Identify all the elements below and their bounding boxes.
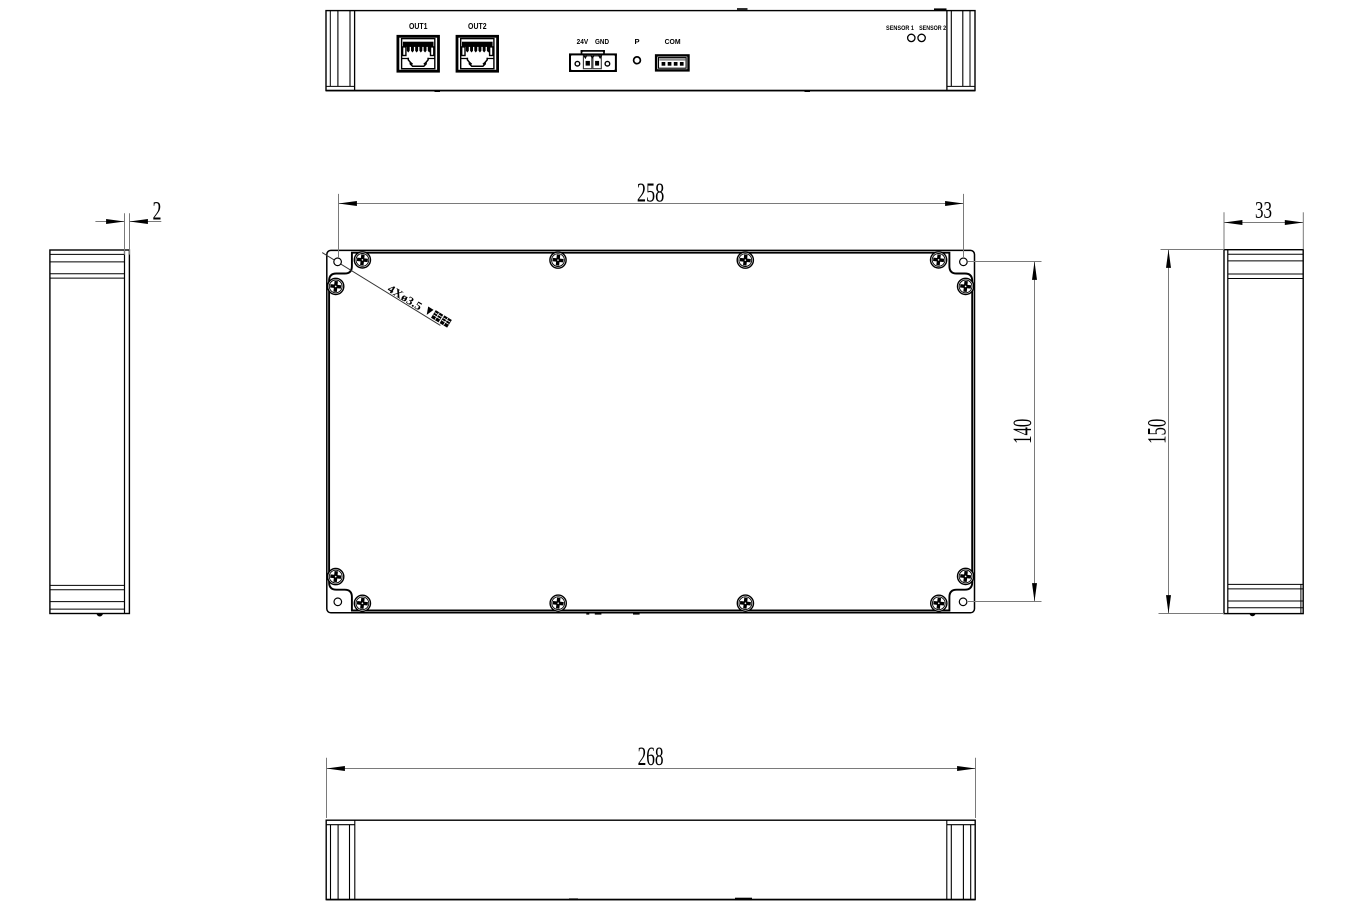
svg-text:GND: GND [595,37,609,46]
svg-text:140: 140 [1008,419,1037,444]
svg-text:24V: 24V [577,37,589,46]
svg-text:150: 150 [1143,419,1172,444]
svg-text:OUT1: OUT1 [409,21,428,31]
svg-text:COM: COM [665,37,681,46]
svg-text:2: 2 [153,197,162,226]
svg-text:SENSOR 2: SENSOR 2 [919,25,946,32]
svg-text:268: 268 [638,742,664,771]
svg-text:P: P [634,37,639,46]
svg-text:258: 258 [637,178,665,208]
svg-text:33: 33 [1255,198,1272,224]
svg-text:SENSOR 1: SENSOR 1 [886,25,914,32]
svg-text:OUT2: OUT2 [468,21,487,31]
